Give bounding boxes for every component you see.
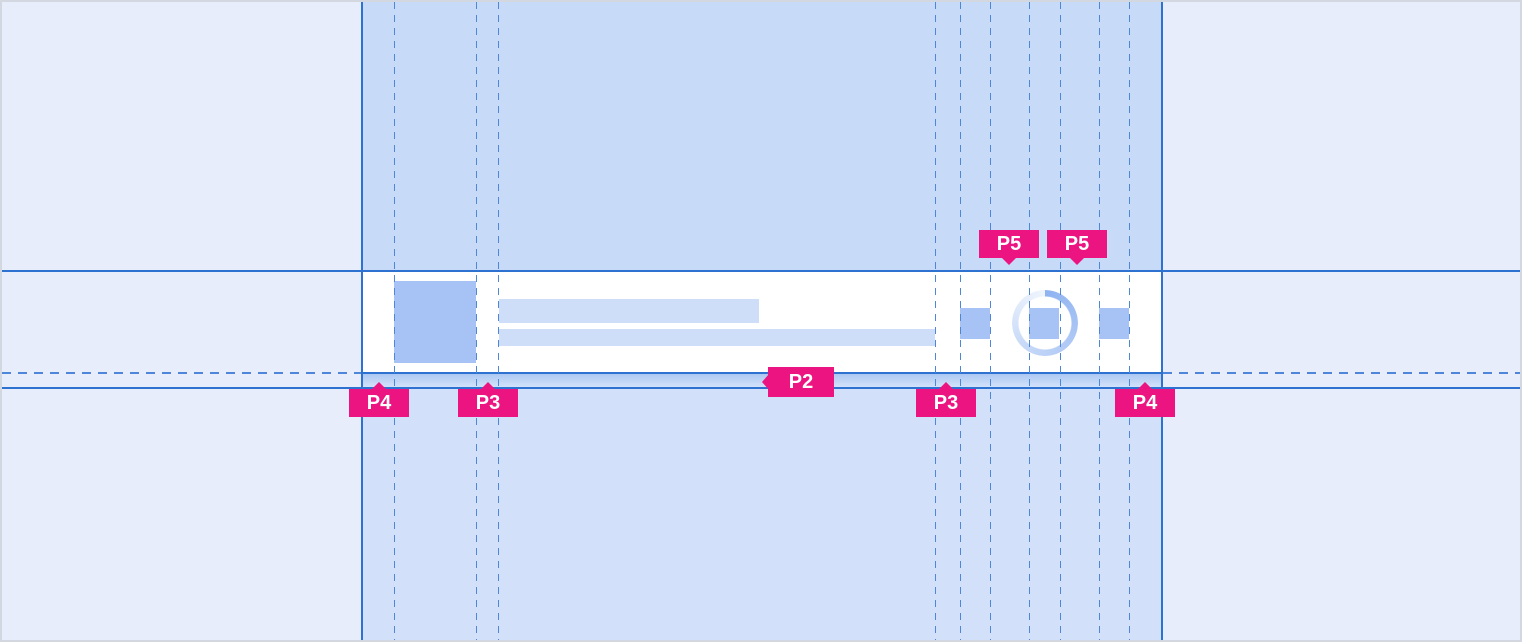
arrow-down-pointer [1001,257,1017,265]
action-placeholder-square-left [960,308,990,339]
padding-label-p3-right: P3 [916,389,976,417]
action-placeholder-square-right [1099,308,1129,339]
vertical-guide-dashed [498,2,499,642]
vertical-guide-band-left [361,2,363,642]
vertical-guide-dashed [1099,2,1100,642]
vertical-guide-dashed [476,2,477,642]
action-placeholder-square-center [1029,308,1059,339]
spec-canvas: P5 P5 P2 P4 P3 P3 P4 [0,0,1522,642]
vertical-guide-band-right [1161,2,1163,642]
padding-label-p5-left: P5 [979,230,1039,258]
horizontal-guide-card-bottom [361,372,1161,374]
subtitle-placeholder-bar [499,329,935,346]
vertical-guide-dashed [394,2,395,642]
arrow-left-pointer [762,374,769,390]
padding-label-p2: P2 [768,367,834,397]
vertical-guide-dashed [1029,2,1030,642]
arrow-up-pointer [1137,382,1153,390]
vertical-guide-dashed [935,2,936,642]
padding-label-p4-left: P4 [349,389,409,417]
vertical-guide-dashed [1129,2,1130,642]
padding-label-p3-left: P3 [458,389,518,417]
horizontal-guide-top [2,270,1522,272]
title-placeholder-bar [499,299,759,323]
arrow-up-pointer [371,382,387,390]
horizontal-guide-dashed-right [1163,372,1522,374]
padding-label-p4-right: P4 [1115,389,1175,417]
arrow-up-pointer [938,382,954,390]
horizontal-guide-dashed-left [2,372,361,374]
vertical-guide-dashed [1060,2,1061,642]
vertical-guide-dashed [960,2,961,642]
avatar-placeholder [394,281,476,363]
arrow-down-pointer [1069,257,1085,265]
arrow-up-pointer [480,382,496,390]
padding-label-p5-right: P5 [1047,230,1107,258]
vertical-guide-dashed [990,2,991,642]
layout-column-band-lower [361,389,1161,642]
